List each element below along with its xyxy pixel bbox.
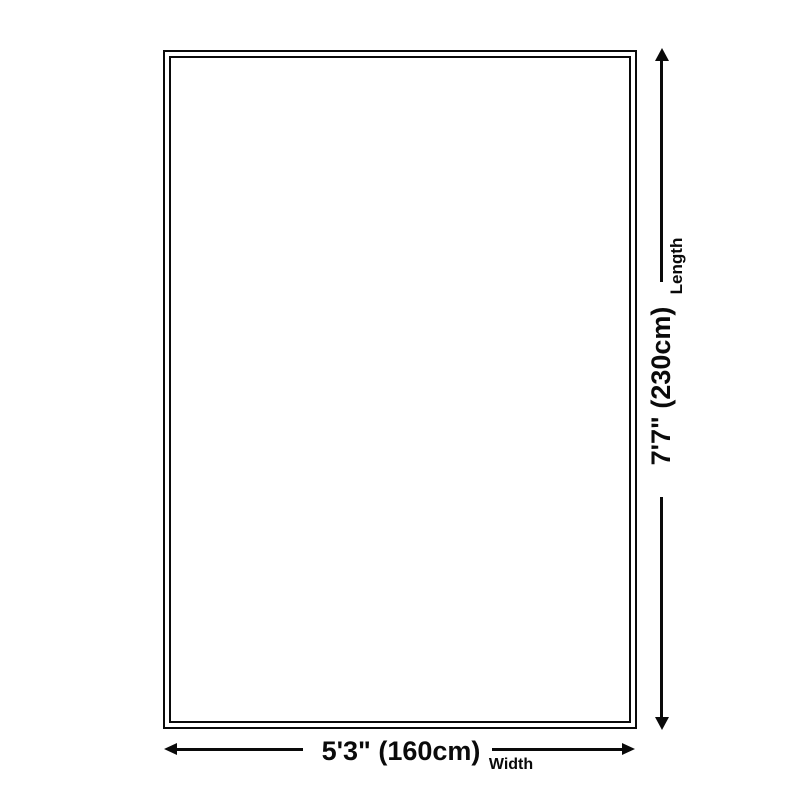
rug-outline [163,50,637,729]
arrow-right-icon [622,743,635,755]
rug-inner-border [169,56,631,723]
length-dimension-line-bottom [660,497,663,718]
rug-size-diagram: Length 7'7" (230cm) 5'3" (160cm) Width [0,0,800,800]
width-dimension-line-right [492,748,631,751]
width-label: Width [471,756,551,774]
arrow-down-icon [655,717,669,730]
width-dimension-line-left [176,748,303,751]
length-value: 7'7" (230cm) [646,286,676,486]
length-dimension-line-top [660,59,663,282]
